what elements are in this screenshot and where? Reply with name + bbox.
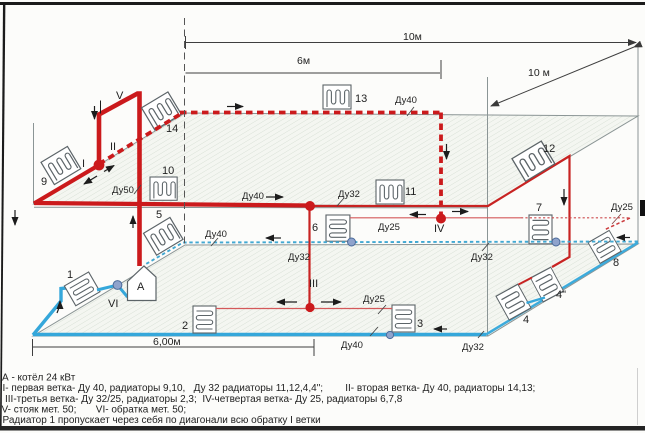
svg-text:7: 7 — [536, 202, 542, 214]
svg-text:III: III — [309, 278, 318, 290]
svg-text:Ду32: Ду32 — [338, 189, 360, 200]
svg-text:Ду50: Ду50 — [112, 185, 134, 196]
svg-text:6: 6 — [312, 222, 318, 234]
svg-text:IV: IV — [434, 223, 445, 235]
svg-text:10: 10 — [162, 165, 174, 177]
svg-text:А: А — [137, 281, 145, 293]
svg-text:V- стояк мет. 50; VI- об: V- стояк мет. 50; VI- обратка мет. 50; — [2, 404, 187, 416]
svg-text:Радиатор 1 пропускает через се: Радиатор 1 пропускает через себя по диаг… — [3, 414, 321, 426]
svg-text:3: 3 — [417, 318, 423, 330]
svg-text:6м: 6м — [297, 55, 310, 67]
svg-text:Ду25: Ду25 — [363, 294, 385, 305]
svg-text:I- первая ветка- Ду 40, радиат: I- первая ветка- Ду 40, радиаторы 9,10, … — [3, 383, 536, 394]
svg-text:4: 4 — [523, 314, 529, 326]
svg-text:VI: VI — [108, 298, 118, 310]
svg-text:11: 11 — [405, 186, 416, 198]
svg-text:14: 14 — [166, 123, 178, 135]
svg-text:Ду32: Ду32 — [471, 252, 493, 263]
svg-text:Ду25: Ду25 — [611, 202, 633, 213]
svg-text:9: 9 — [41, 176, 47, 188]
svg-text:Ду40: Ду40 — [395, 95, 417, 106]
svg-text:4": 4" — [556, 289, 566, 301]
svg-text:III-третья ветка- Ду 32/25, ра: III-третья ветка- Ду 32/25, радиаторы 2,… — [5, 394, 403, 405]
svg-text:1: 1 — [67, 269, 73, 281]
svg-text:Ду40: Ду40 — [242, 191, 264, 202]
svg-text:II: II — [110, 141, 116, 153]
svg-text:2: 2 — [182, 320, 188, 332]
svg-text:8: 8 — [613, 257, 619, 269]
svg-text:10 м: 10 м — [528, 67, 550, 79]
svg-text:А - котёл 24 кВт: А - котёл 24 кВт — [2, 373, 76, 384]
svg-text:10м: 10м — [403, 31, 422, 43]
svg-text:Ду40: Ду40 — [341, 340, 363, 351]
svg-text:I: I — [82, 158, 85, 170]
svg-text:V: V — [116, 90, 124, 102]
svg-text:13: 13 — [355, 93, 367, 105]
svg-text:Ду40: Ду40 — [205, 229, 227, 240]
svg-text:Ду32: Ду32 — [288, 252, 310, 263]
svg-text:6,00м: 6,00м — [153, 336, 181, 348]
svg-text:12: 12 — [543, 143, 555, 155]
svg-text:5: 5 — [156, 209, 162, 221]
svg-text:Ду32: Ду32 — [462, 342, 484, 353]
svg-text:Ду25: Ду25 — [378, 222, 400, 233]
